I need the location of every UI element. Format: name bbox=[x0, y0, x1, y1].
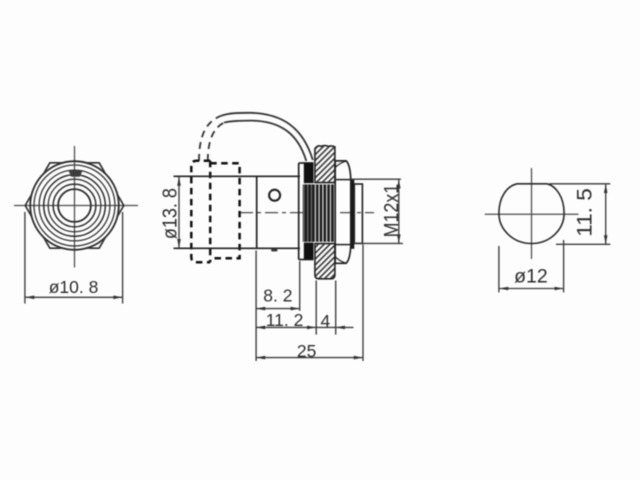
svg-text:M12x1: M12x1 bbox=[380, 184, 403, 238]
svg-text:ø12: ø12 bbox=[514, 266, 548, 288]
svg-text:11. 5: 11. 5 bbox=[574, 188, 597, 237]
svg-text:4: 4 bbox=[321, 311, 331, 331]
svg-text:ø10. 8: ø10. 8 bbox=[49, 277, 99, 297]
svg-text:8. 2: 8. 2 bbox=[263, 285, 292, 305]
svg-text:11. 2: 11. 2 bbox=[266, 310, 304, 330]
svg-text:ø13. 8: ø13. 8 bbox=[159, 188, 182, 239]
svg-text:25: 25 bbox=[297, 341, 316, 361]
